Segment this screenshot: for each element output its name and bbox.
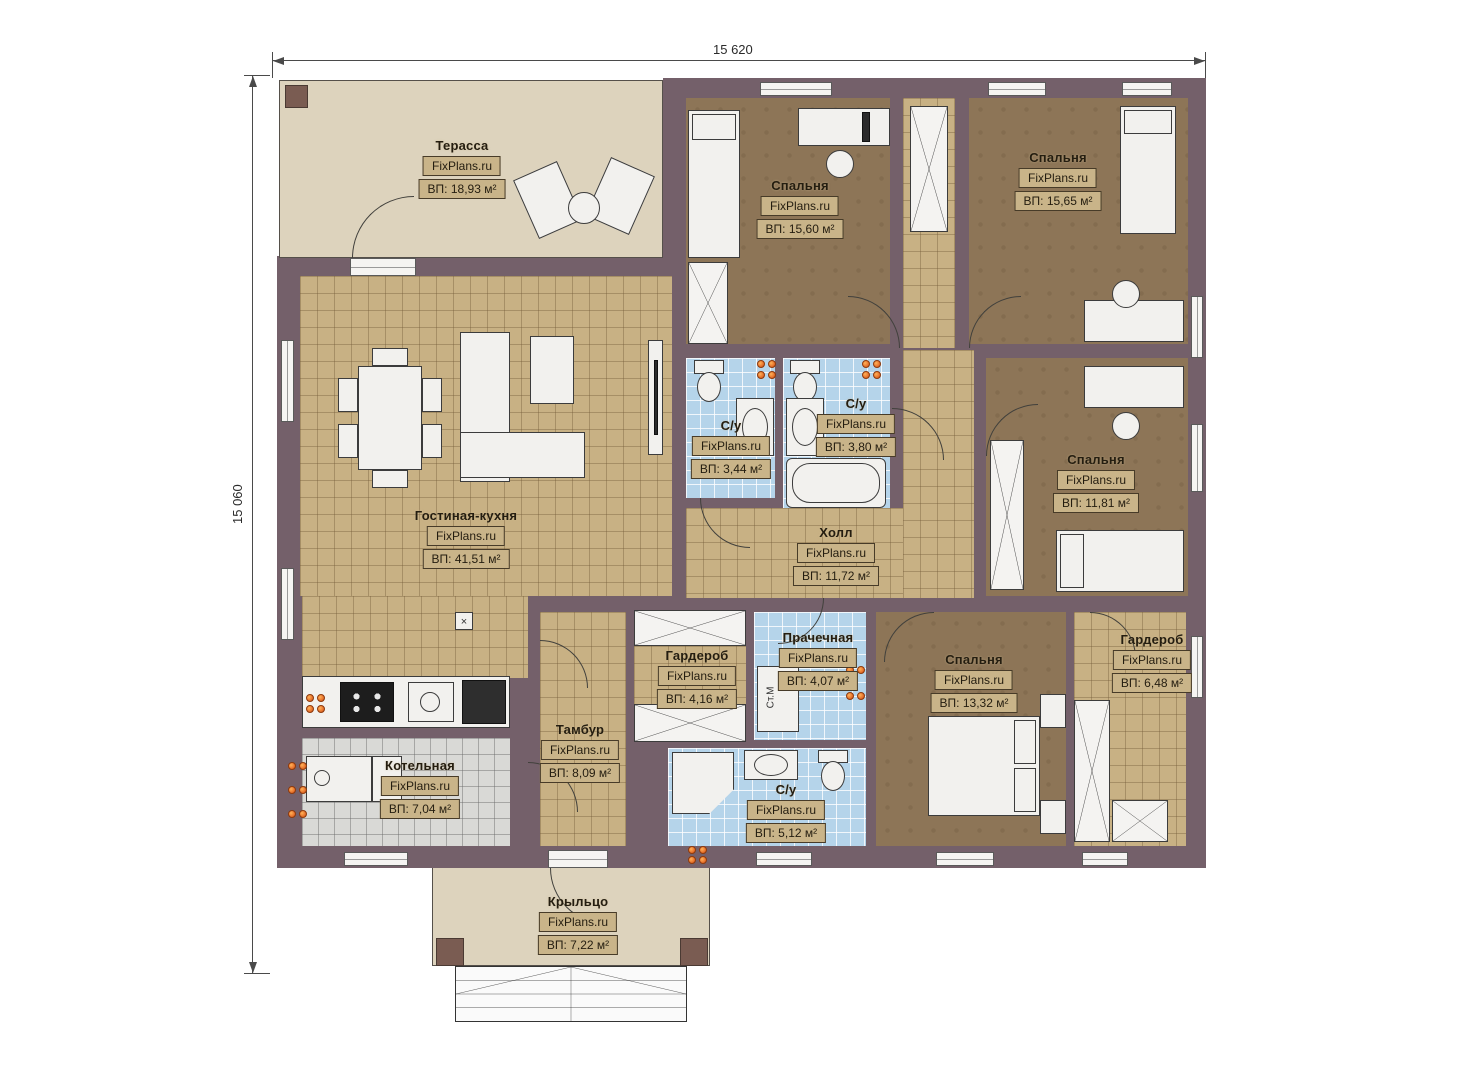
socket-dot bbox=[299, 810, 307, 818]
socket-dot bbox=[862, 360, 870, 368]
wardrobe-cabinet bbox=[1074, 700, 1110, 842]
room-name: Прачечная bbox=[783, 630, 854, 645]
room-area: ВП: 4,07 м² bbox=[778, 671, 858, 691]
window bbox=[1122, 82, 1172, 96]
socket-dot bbox=[317, 694, 325, 702]
room-area: ВП: 7,22 м² bbox=[538, 935, 618, 955]
kitchen-sink-bowl bbox=[420, 692, 440, 712]
dining-chair bbox=[338, 378, 358, 412]
fridge bbox=[462, 680, 506, 724]
floor-plan-canvas: × Ст.М bbox=[0, 0, 1473, 1080]
dining-chair bbox=[422, 424, 442, 458]
window bbox=[1191, 636, 1203, 698]
dining-chair bbox=[338, 424, 358, 458]
room-area: ВП: 41,51 м² bbox=[423, 549, 510, 569]
room-name: Спальня bbox=[945, 652, 1003, 667]
room-name: Спальня bbox=[1029, 150, 1087, 165]
corridor-floor bbox=[903, 350, 974, 598]
sink-bowl bbox=[754, 754, 788, 776]
brand-watermark: FixPlans.ru bbox=[1113, 650, 1191, 670]
room-name: С/у bbox=[846, 396, 867, 411]
bed-pillow bbox=[692, 114, 736, 140]
room-label-living: Гостиная-кухня FixPlans.ru ВП: 41,51 м² bbox=[415, 508, 517, 569]
washing-machine-label: Ст.М bbox=[765, 687, 776, 709]
room-name: Гардероб bbox=[1120, 632, 1183, 647]
room-area: ВП: 15,65 м² bbox=[1015, 191, 1102, 211]
office-chair bbox=[826, 150, 854, 178]
kitchen-floor bbox=[302, 596, 528, 678]
dining-chair bbox=[372, 470, 408, 488]
window bbox=[281, 568, 294, 640]
brand-watermark: FixPlans.ru bbox=[692, 436, 770, 456]
wardrobe-shelf bbox=[1112, 800, 1168, 842]
room-area: ВП: 6,48 м² bbox=[1112, 673, 1192, 693]
brand-watermark: FixPlans.ru bbox=[817, 414, 895, 434]
room-label-bedroom3: Спальня FixPlans.ru ВП: 11,81 м² bbox=[1053, 452, 1139, 513]
socket-dot bbox=[688, 846, 696, 854]
socket-dot bbox=[288, 762, 296, 770]
socket-dot bbox=[306, 705, 314, 713]
socket-dot bbox=[306, 694, 314, 702]
room-name: Терасса bbox=[436, 138, 489, 153]
socket-dot bbox=[857, 666, 865, 674]
desk bbox=[1084, 300, 1184, 342]
room-name: Гардероб bbox=[665, 648, 728, 663]
socket-dot bbox=[846, 692, 854, 700]
bathtub-inner bbox=[792, 463, 880, 503]
room-area: ВП: 13,32 м² bbox=[931, 693, 1018, 713]
window bbox=[281, 340, 294, 422]
room-label-hall: Холл FixPlans.ru ВП: 11,72 м² bbox=[793, 525, 879, 586]
room-label-bedroom2: Спальня FixPlans.ru ВП: 15,65 м² bbox=[1015, 150, 1102, 211]
vent-symbol: × bbox=[455, 612, 473, 630]
brand-watermark: FixPlans.ru bbox=[541, 740, 619, 760]
room-name: Холл bbox=[819, 525, 852, 540]
dimension-arrow bbox=[249, 962, 257, 973]
terrace-table bbox=[568, 192, 600, 224]
socket-dot bbox=[768, 360, 776, 368]
dining-chair bbox=[372, 348, 408, 366]
bed-pillow bbox=[1124, 110, 1172, 134]
room-name: С/у bbox=[776, 782, 797, 797]
brand-watermark: FixPlans.ru bbox=[539, 912, 617, 932]
brand-watermark: FixPlans.ru bbox=[747, 800, 825, 820]
dimension-extension bbox=[272, 52, 273, 78]
window bbox=[1191, 424, 1203, 492]
room-label-bath1: С/у FixPlans.ru ВП: 3,44 м² bbox=[691, 418, 771, 479]
brand-watermark: FixPlans.ru bbox=[761, 196, 839, 216]
porch-steps bbox=[455, 966, 687, 1022]
wardrobe-cabinet bbox=[910, 106, 948, 232]
bed-pillow bbox=[1014, 768, 1036, 812]
office-chair bbox=[1112, 280, 1140, 308]
room-label-bath3: С/у FixPlans.ru ВП: 5,12 м² bbox=[746, 782, 826, 843]
bed-pillow bbox=[1060, 534, 1084, 588]
brand-watermark: FixPlans.ru bbox=[381, 776, 459, 796]
room-area: ВП: 8,09 м² bbox=[540, 763, 620, 783]
socket-dot bbox=[317, 705, 325, 713]
toilet-bowl bbox=[697, 372, 721, 402]
room-area: ВП: 4,16 м² bbox=[657, 689, 737, 709]
room-name: Крыльцо bbox=[548, 894, 609, 909]
entrance-door-opening bbox=[548, 850, 608, 868]
room-area: ВП: 3,80 м² bbox=[816, 437, 896, 457]
window bbox=[344, 852, 408, 866]
terrace-door-opening bbox=[350, 258, 416, 276]
room-label-wardrobe1: Гардероб FixPlans.ru ВП: 4,16 м² bbox=[657, 648, 737, 709]
dimension-extension bbox=[1205, 52, 1206, 78]
desk bbox=[798, 108, 890, 146]
room-label-boiler: Котельная FixPlans.ru ВП: 7,04 м² bbox=[380, 758, 460, 819]
window bbox=[1082, 852, 1128, 866]
room-name: Спальня bbox=[771, 178, 829, 193]
room-area: ВП: 18,93 м² bbox=[419, 179, 506, 199]
nightstand bbox=[1040, 694, 1066, 728]
socket-dot bbox=[862, 371, 870, 379]
socket-dot bbox=[288, 786, 296, 794]
brand-watermark: FixPlans.ru bbox=[1019, 168, 1097, 188]
socket-dot bbox=[873, 360, 881, 368]
dining-table bbox=[358, 366, 422, 470]
window bbox=[756, 852, 812, 866]
brand-watermark: FixPlans.ru bbox=[427, 526, 505, 546]
socket-dot bbox=[757, 360, 765, 368]
boiler-dial bbox=[314, 770, 330, 786]
brand-watermark: FixPlans.ru bbox=[423, 156, 501, 176]
room-area: ВП: 11,81 м² bbox=[1053, 493, 1139, 513]
room-label-tambour: Тамбур FixPlans.ru ВП: 8,09 м² bbox=[540, 722, 620, 783]
dimension-width-label: 15 620 bbox=[713, 42, 753, 57]
desk bbox=[1084, 366, 1184, 408]
dimension-arrow bbox=[1194, 57, 1205, 65]
socket-dot bbox=[299, 786, 307, 794]
room-area: ВП: 3,44 м² bbox=[691, 459, 771, 479]
room-label-wardrobe2: Гардероб FixPlans.ru ВП: 6,48 м² bbox=[1112, 632, 1192, 693]
room-name: Спальня bbox=[1067, 452, 1125, 467]
room-label-bedroom4: Спальня FixPlans.ru ВП: 13,32 м² bbox=[931, 652, 1018, 713]
dimension-line-left bbox=[252, 75, 253, 973]
office-chair bbox=[1112, 412, 1140, 440]
dining-chair bbox=[422, 378, 442, 412]
socket-dot bbox=[857, 692, 865, 700]
window bbox=[760, 82, 832, 96]
brand-watermark: FixPlans.ru bbox=[658, 666, 736, 686]
porch-post bbox=[436, 938, 464, 966]
terrace-corner-post bbox=[285, 85, 308, 108]
socket-dot bbox=[299, 762, 307, 770]
nightstand bbox=[1040, 800, 1066, 834]
wardrobe-cabinet bbox=[634, 610, 746, 646]
desk-monitor bbox=[862, 112, 870, 142]
wardrobe-cabinet bbox=[990, 440, 1024, 590]
room-area: ВП: 15,60 м² bbox=[757, 219, 844, 239]
socket-dot bbox=[288, 810, 296, 818]
room-area: ВП: 5,12 м² bbox=[746, 823, 826, 843]
stove-burners bbox=[346, 688, 388, 716]
room-name: Гостиная-кухня bbox=[415, 508, 517, 523]
room-name: Тамбур bbox=[556, 722, 604, 737]
room-area: ВП: 11,72 м² bbox=[793, 566, 879, 586]
bed-pillow bbox=[1014, 720, 1036, 764]
room-label-laundry: Прачечная FixPlans.ru ВП: 4,07 м² bbox=[778, 630, 858, 691]
room-name: Котельная bbox=[385, 758, 455, 773]
sink-bowl bbox=[792, 408, 818, 446]
tv-screen bbox=[654, 360, 658, 435]
dimension-extension bbox=[244, 75, 270, 76]
window bbox=[936, 852, 994, 866]
window bbox=[1191, 296, 1203, 358]
wardrobe-cabinet bbox=[688, 262, 728, 344]
room-label-bedroom1: Спальня FixPlans.ru ВП: 15,60 м² bbox=[757, 178, 844, 239]
window bbox=[988, 82, 1046, 96]
room-label-bath2: С/у FixPlans.ru ВП: 3,80 м² bbox=[816, 396, 896, 457]
room-area: ВП: 7,04 м² bbox=[380, 799, 460, 819]
socket-dot bbox=[873, 371, 881, 379]
brand-watermark: FixPlans.ru bbox=[1057, 470, 1135, 490]
dimension-height-label: 15 060 bbox=[230, 484, 245, 524]
socket-dot bbox=[768, 371, 776, 379]
room-name: С/у bbox=[721, 418, 742, 433]
wardrobe-cabinet bbox=[634, 704, 746, 742]
brand-watermark: FixPlans.ru bbox=[935, 670, 1013, 690]
socket-dot bbox=[699, 856, 707, 864]
dimension-line-top bbox=[272, 60, 1206, 61]
dimension-arrow bbox=[249, 76, 257, 87]
sofa-horizontal bbox=[460, 432, 585, 478]
brand-watermark: FixPlans.ru bbox=[797, 543, 875, 563]
socket-dot bbox=[688, 856, 696, 864]
armchair bbox=[530, 336, 574, 404]
dimension-extension bbox=[244, 973, 270, 974]
porch-post bbox=[680, 938, 708, 966]
brand-watermark: FixPlans.ru bbox=[779, 648, 857, 668]
room-label-terrace: Терасса FixPlans.ru ВП: 18,93 м² bbox=[419, 138, 506, 199]
socket-dot bbox=[699, 846, 707, 854]
dimension-arrow bbox=[273, 57, 284, 65]
socket-dot bbox=[757, 371, 765, 379]
room-label-porch: Крыльцо FixPlans.ru ВП: 7,22 м² bbox=[538, 894, 618, 955]
